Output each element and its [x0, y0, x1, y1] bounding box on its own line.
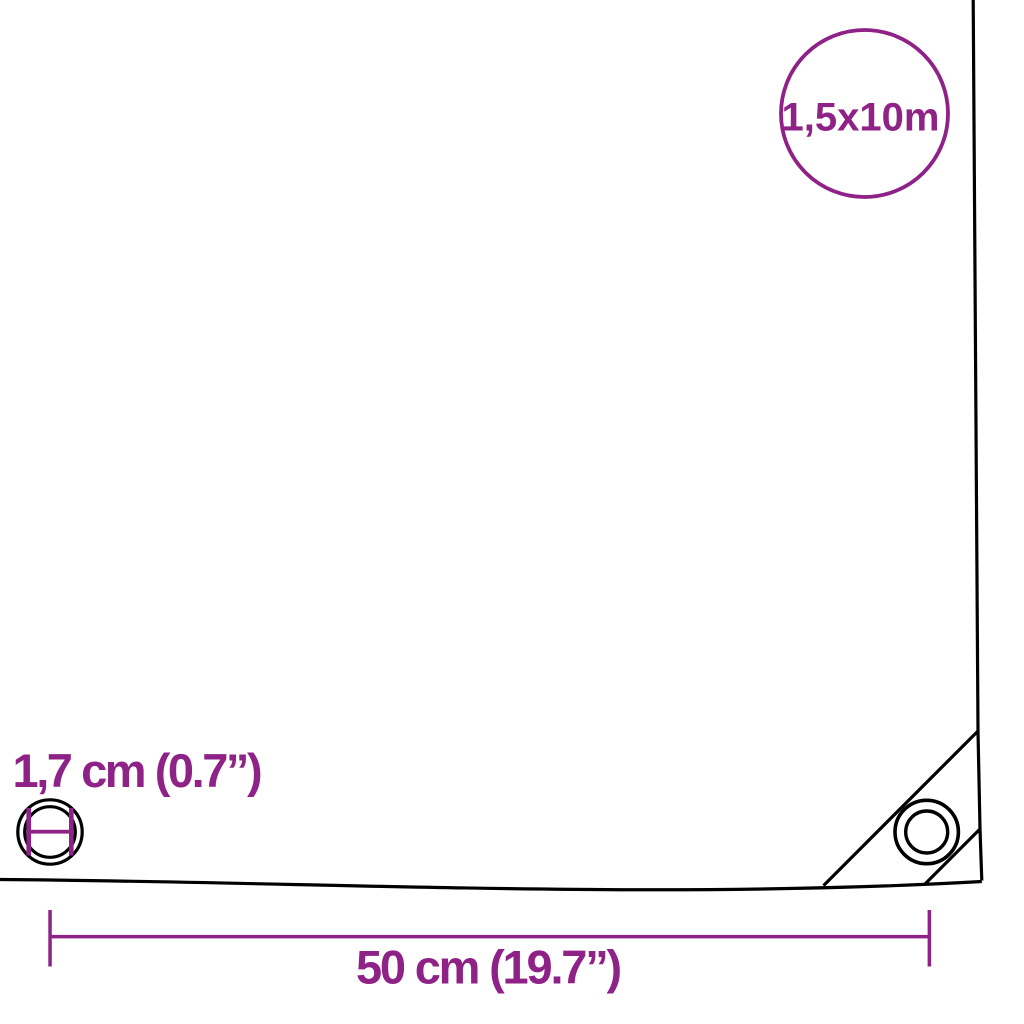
- svg-text:1,5x10m: 1,5x10m: [782, 96, 940, 140]
- svg-text:1,7 cm (0.7”): 1,7 cm (0.7”): [13, 744, 261, 797]
- svg-text:50 cm (19.7”): 50 cm (19.7”): [356, 940, 621, 993]
